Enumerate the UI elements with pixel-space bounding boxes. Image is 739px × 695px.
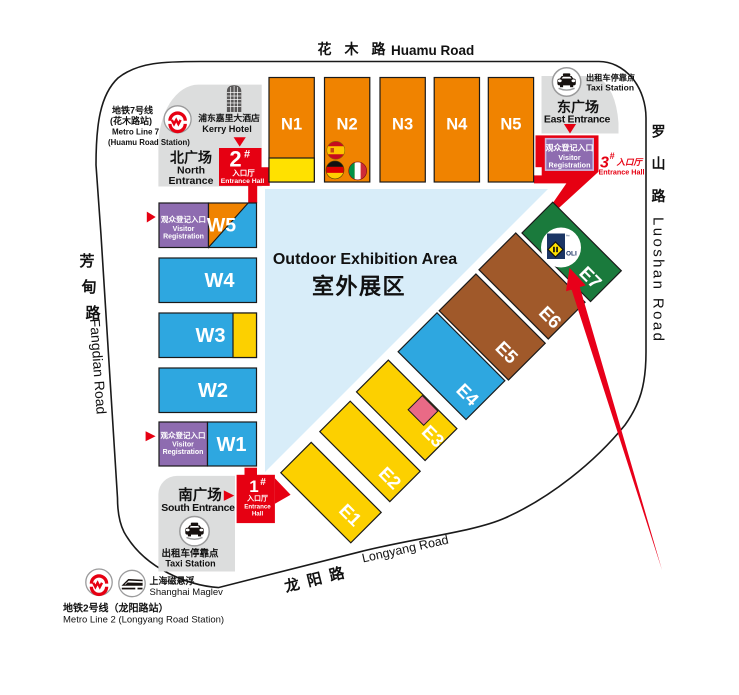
svg-text:观众登记入口: 观众登记入口 bbox=[161, 430, 206, 440]
svg-text:路: 路 bbox=[652, 188, 667, 204]
svg-text:Visitor: Visitor bbox=[173, 226, 195, 233]
svg-text:(花木路站): (花木路站) bbox=[110, 115, 152, 126]
svg-text:Shanghai Maglev: Shanghai Maglev bbox=[150, 587, 224, 598]
svg-text:入口厅: 入口厅 bbox=[246, 495, 268, 503]
svg-text:Entrance: Entrance bbox=[169, 175, 214, 187]
svg-text:Metro Line 2 (Longyang Road St: Metro Line 2 (Longyang Road Station) bbox=[63, 615, 224, 626]
svg-text:入口厅: 入口厅 bbox=[231, 169, 255, 178]
svg-text:#: # bbox=[260, 477, 266, 488]
svg-text:1: 1 bbox=[249, 477, 258, 496]
svg-text:N4: N4 bbox=[446, 116, 468, 134]
svg-text:™: ™ bbox=[566, 234, 570, 239]
svg-text:Entrance: Entrance bbox=[244, 504, 271, 511]
svg-text:地铁2号线（龙阳路站）: 地铁2号线（龙阳路站） bbox=[63, 602, 169, 615]
svg-text:观众登记入口: 观众登记入口 bbox=[161, 214, 206, 224]
svg-text:Entrance Hall: Entrance Hall bbox=[599, 167, 645, 176]
svg-text:Kerry Hotel: Kerry Hotel bbox=[202, 124, 252, 134]
svg-text:出租车停靠点: 出租车停靠点 bbox=[586, 73, 636, 83]
svg-text:South Entrance: South Entrance bbox=[161, 502, 235, 514]
svg-text:W3: W3 bbox=[196, 325, 226, 347]
svg-text:观众登记入口: 观众登记入口 bbox=[546, 143, 594, 153]
svg-text:Registration: Registration bbox=[163, 234, 204, 241]
svg-text:W1: W1 bbox=[217, 434, 247, 456]
svg-text:Outdoor Exhibition Area: Outdoor Exhibition Area bbox=[273, 251, 457, 268]
svg-text:Registration: Registration bbox=[549, 161, 591, 170]
svg-text:路: 路 bbox=[372, 41, 387, 57]
svg-text:上海磁悬浮: 上海磁悬浮 bbox=[150, 575, 195, 586]
svg-text:Luoshan Road: Luoshan Road bbox=[650, 217, 667, 343]
svg-text:芳: 芳 bbox=[79, 252, 94, 270]
svg-text:浦东嘉里大酒店: 浦东嘉里大酒店 bbox=[198, 112, 260, 123]
svg-text:室外展区: 室外展区 bbox=[312, 274, 406, 299]
svg-text:W5: W5 bbox=[207, 215, 236, 237]
svg-text:N1: N1 bbox=[281, 116, 302, 134]
svg-text:N5: N5 bbox=[500, 116, 521, 134]
svg-text:(Huamu Road Station): (Huamu Road Station) bbox=[108, 138, 190, 147]
svg-text:罗: 罗 bbox=[652, 124, 666, 140]
svg-text:Huamu Road: Huamu Road bbox=[391, 43, 474, 58]
svg-text:W2: W2 bbox=[198, 380, 228, 402]
svg-text:入口厅: 入口厅 bbox=[616, 157, 644, 167]
svg-text:W4: W4 bbox=[205, 270, 236, 292]
svg-text:木: 木 bbox=[344, 41, 360, 57]
svg-text:N2: N2 bbox=[337, 116, 358, 134]
svg-text:Metro Line 7: Metro Line 7 bbox=[112, 128, 160, 137]
svg-text:Taxi Station: Taxi Station bbox=[165, 559, 215, 569]
svg-text:East Entrance: East Entrance bbox=[544, 114, 611, 126]
svg-text:OLI: OLI bbox=[566, 251, 577, 258]
svg-text:#: # bbox=[610, 151, 615, 161]
svg-text:山: 山 bbox=[652, 156, 666, 172]
svg-text:地铁7号线: 地铁7号线 bbox=[112, 105, 153, 116]
svg-text:Registration: Registration bbox=[163, 449, 204, 456]
svg-text:N3: N3 bbox=[392, 116, 413, 134]
svg-text:Entrance Hall: Entrance Hall bbox=[221, 178, 265, 185]
svg-text:Visitor: Visitor bbox=[172, 442, 194, 449]
svg-text:Taxi Station: Taxi Station bbox=[587, 83, 635, 93]
svg-text:北广场: 北广场 bbox=[170, 150, 212, 166]
svg-text:花: 花 bbox=[318, 41, 332, 57]
svg-text:Hall: Hall bbox=[252, 511, 264, 518]
svg-text:甸: 甸 bbox=[80, 278, 96, 296]
svg-text:#: # bbox=[244, 149, 250, 161]
